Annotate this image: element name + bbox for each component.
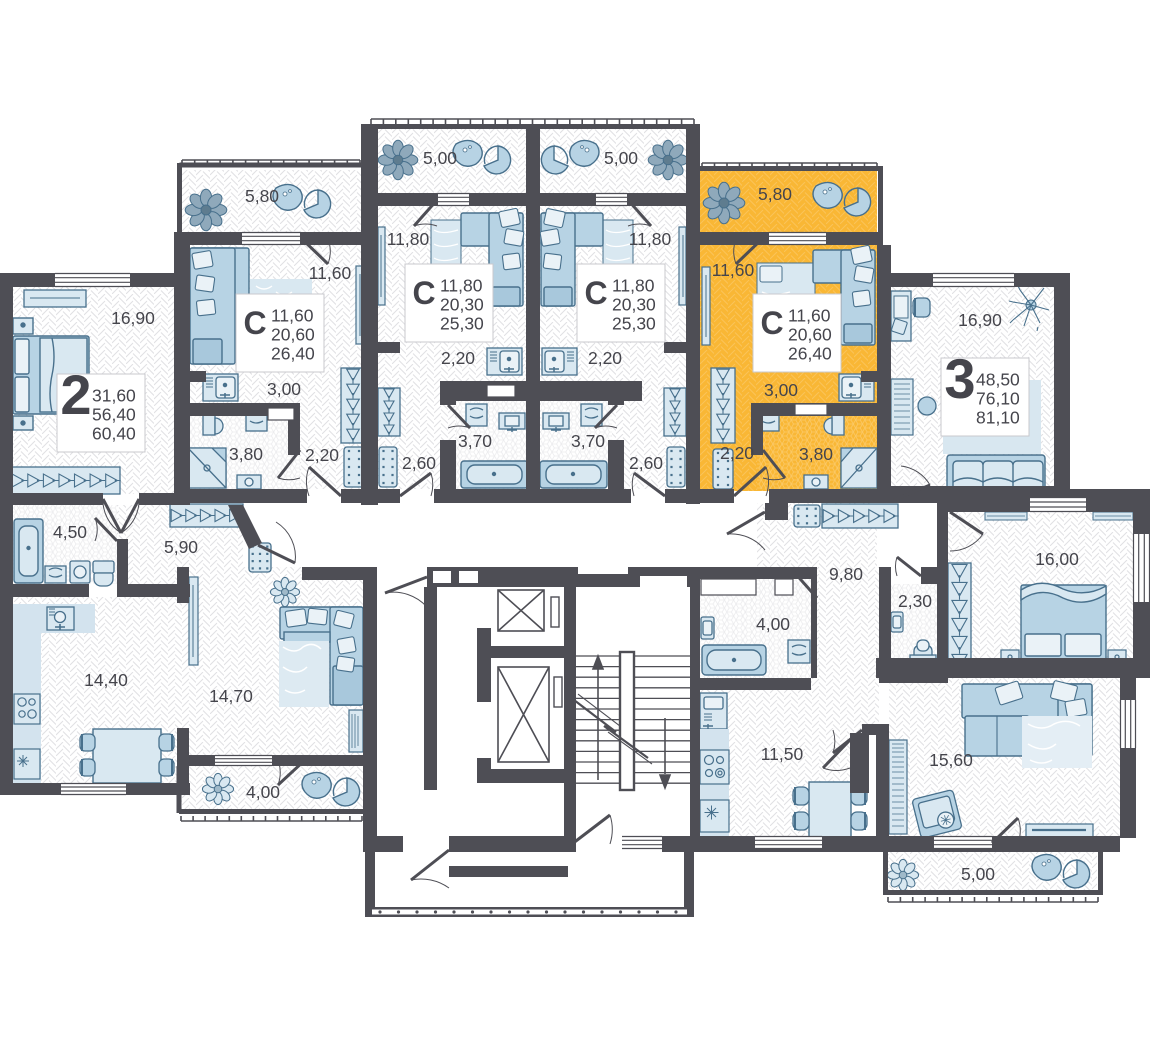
svg-text:25,30: 25,30	[612, 314, 656, 334]
svg-text:3: 3	[944, 347, 975, 410]
svg-text:3,70: 3,70	[571, 431, 605, 451]
svg-text:5,00: 5,00	[961, 864, 995, 884]
svg-text:26,40: 26,40	[788, 344, 832, 364]
svg-text:11,60: 11,60	[271, 306, 314, 326]
svg-text:5,80: 5,80	[245, 186, 279, 206]
svg-text:14,40: 14,40	[84, 670, 128, 690]
svg-text:2,30: 2,30	[898, 591, 932, 611]
svg-text:76,10: 76,10	[976, 389, 1020, 409]
svg-text:3,80: 3,80	[229, 444, 263, 464]
svg-text:11,80: 11,80	[612, 276, 655, 296]
svg-text:C: C	[412, 275, 435, 311]
svg-text:56,40: 56,40	[92, 405, 136, 425]
svg-text:3,70: 3,70	[458, 431, 492, 451]
svg-text:16,00: 16,00	[1035, 549, 1079, 569]
svg-text:20,60: 20,60	[271, 325, 315, 345]
svg-text:11,80: 11,80	[387, 229, 430, 249]
svg-text:11,80: 11,80	[629, 229, 672, 249]
svg-text:2,60: 2,60	[629, 453, 663, 473]
svg-text:2,60: 2,60	[402, 453, 436, 473]
svg-text:31,60: 31,60	[92, 386, 136, 406]
svg-text:4,00: 4,00	[246, 782, 280, 802]
svg-text:20,60: 20,60	[788, 325, 832, 345]
svg-text:4,00: 4,00	[756, 614, 790, 634]
svg-text:5,80: 5,80	[758, 184, 792, 204]
svg-text:5,90: 5,90	[164, 537, 198, 557]
svg-text:9,80: 9,80	[829, 564, 863, 584]
svg-text:16,90: 16,90	[958, 310, 1002, 330]
svg-text:C: C	[243, 305, 266, 341]
svg-text:3,00: 3,00	[764, 380, 798, 400]
svg-text:11,60: 11,60	[309, 263, 352, 283]
svg-text:11,60: 11,60	[788, 306, 831, 326]
svg-text:20,30: 20,30	[612, 295, 656, 315]
svg-text:2: 2	[60, 363, 91, 426]
svg-text:20,30: 20,30	[440, 295, 484, 315]
svg-text:2,20: 2,20	[720, 443, 754, 463]
svg-text:5,00: 5,00	[423, 148, 457, 168]
svg-text:2,20: 2,20	[305, 445, 339, 465]
svg-text:C: C	[584, 275, 607, 311]
svg-text:3,00: 3,00	[267, 379, 301, 399]
svg-text:48,50: 48,50	[976, 370, 1020, 390]
svg-text:5,00: 5,00	[604, 148, 638, 168]
svg-text:3,80: 3,80	[799, 444, 833, 464]
svg-text:60,40: 60,40	[92, 424, 136, 444]
svg-text:15,60: 15,60	[929, 750, 973, 770]
svg-text:4,50: 4,50	[53, 522, 87, 542]
svg-text:81,10: 81,10	[976, 408, 1020, 428]
svg-text:2,20: 2,20	[588, 348, 622, 368]
svg-text:26,40: 26,40	[271, 344, 315, 364]
svg-text:16,90: 16,90	[111, 308, 155, 328]
svg-text:2,20: 2,20	[441, 348, 475, 368]
svg-text:C: C	[760, 305, 783, 341]
svg-text:25,30: 25,30	[440, 314, 484, 334]
svg-text:11,50: 11,50	[761, 744, 804, 764]
svg-text:11,80: 11,80	[440, 276, 483, 296]
svg-text:14,70: 14,70	[209, 686, 253, 706]
svg-text:11,60: 11,60	[712, 260, 755, 280]
